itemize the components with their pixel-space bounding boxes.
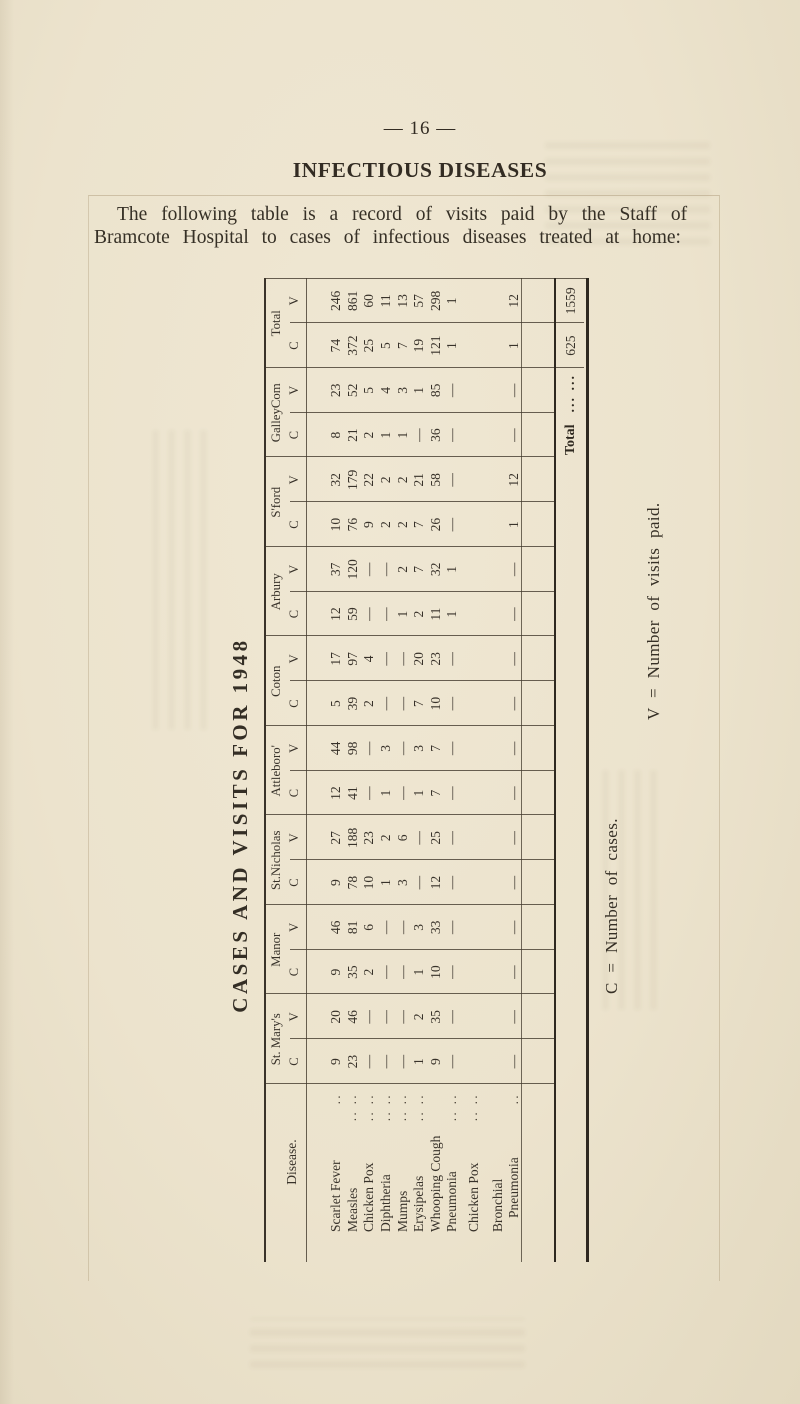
station-subheaders: CV	[287, 279, 302, 369]
table-row: Pneumonia.. ..——————————11————11	[444, 279, 461, 1263]
station-header: Attleboro'CV	[269, 726, 305, 816]
value-cell: —	[378, 592, 394, 637]
disease-name: Chicken Pox	[361, 1163, 377, 1232]
station-header: St. Mary'sCV	[269, 995, 305, 1085]
value-cell: 8	[328, 413, 344, 458]
subheader-v: V	[287, 905, 302, 950]
value-cell: 3	[411, 905, 427, 950]
value-cell: 46	[345, 995, 361, 1040]
value-cell: 2	[395, 502, 411, 547]
report-page: — 16 — INFECTIOUS DISEASES The following…	[0, 0, 800, 1404]
value-cell: —	[378, 950, 394, 995]
value-cell: —	[444, 816, 460, 861]
value-cell: 46	[328, 905, 344, 950]
subheader-v: V	[287, 995, 302, 1040]
station-header: St.NicholasCV	[269, 816, 305, 906]
value-cell: 9	[328, 860, 344, 905]
disease-column-header: Disease.	[284, 1084, 300, 1262]
value-cell: 4	[378, 368, 394, 413]
value-cell: 12	[428, 860, 444, 905]
value-cell: 1	[411, 368, 427, 413]
value-cell: 76	[345, 502, 361, 547]
value-cell: —	[378, 905, 394, 950]
value-cell: 23	[361, 816, 377, 861]
value-cell: —	[444, 413, 460, 458]
value-cell: 120	[345, 547, 361, 592]
value-cell: —	[361, 547, 377, 592]
value-cell: 39	[345, 681, 361, 726]
disease-name: Erysipelas	[411, 1176, 427, 1232]
value-cell: 41	[345, 771, 361, 816]
disease-name: Whooping Cough	[428, 1136, 444, 1232]
value-cell: —	[444, 458, 460, 503]
station-subheaders: CV	[287, 458, 302, 548]
value-cell: 11	[378, 279, 394, 324]
total-leader-dots: ... ...	[563, 374, 578, 413]
key-visits: V = Number of visits paid.	[644, 503, 664, 721]
value-cell: 35	[345, 950, 361, 995]
page-number: — 16 —	[0, 118, 800, 140]
value-cell: 7	[428, 771, 444, 816]
leader-dots: .. ..	[395, 1093, 410, 1121]
value-cell: 2	[411, 592, 427, 637]
value-cell: 20	[328, 995, 344, 1040]
value-cell: 22	[361, 458, 377, 503]
subheader-c: C	[287, 681, 302, 726]
disease-name: Scarlet Fever	[328, 1160, 344, 1232]
total-word: Total	[563, 425, 578, 456]
table-row: BronchialPneumonia..————————————112——112	[487, 279, 523, 1263]
value-cell: 246	[328, 279, 344, 324]
station-subheaders: CV	[287, 637, 302, 727]
value-cell: 13	[395, 279, 411, 324]
table-row: Measles.. ..2346358178188419839975912076…	[345, 279, 362, 1263]
value-cell: 44	[328, 726, 344, 771]
page-title: INFECTIOUS DISEASES	[0, 158, 800, 183]
disease-label: Chicken Pox.. ..	[361, 1084, 377, 1262]
value-cell: —	[444, 726, 460, 771]
station-name: Total	[269, 279, 284, 369]
value-cell: 10	[428, 681, 444, 726]
value-cell: 11	[428, 592, 444, 637]
value-cell: 33	[428, 905, 444, 950]
value-cell: 58	[428, 458, 444, 503]
value-cell: 1	[378, 860, 394, 905]
rotated-table-block: CASES AND VISITS FOR 1948 Disease. St. M…	[228, 278, 688, 1262]
value-cell: 20	[411, 637, 427, 682]
value-cell: 2	[361, 413, 377, 458]
leader-dots: .. ..	[362, 1093, 377, 1121]
station-name: Coton	[269, 637, 284, 727]
grand-total-visits: 1559	[556, 279, 586, 324]
table-row: Chicken Pox.. ..——261023——24——922252560	[361, 279, 378, 1263]
leader-dots: .. ..	[445, 1093, 460, 1121]
intro-paragraph-line2: Bramcote Hospital to cases of infectious…	[94, 227, 681, 249]
value-cell: 21	[411, 458, 427, 503]
value-cell: 10	[428, 950, 444, 995]
value-cell: 188	[345, 816, 361, 861]
value-cell: —	[444, 1039, 460, 1084]
subheader-c: C	[287, 860, 302, 905]
value-cell: —	[378, 681, 394, 726]
intro-paragraph-line1: The following table is a record of visit…	[117, 204, 687, 226]
value-cell: —	[444, 860, 460, 905]
subheader-c: C	[287, 592, 302, 637]
subheader-c: C	[287, 771, 302, 816]
value-cell: 6	[361, 905, 377, 950]
value-cell: 3	[378, 726, 394, 771]
disease-name: Mumps	[395, 1191, 411, 1232]
station-name: Arbury	[269, 547, 284, 637]
value-cell: 5	[328, 681, 344, 726]
value-cell: —	[444, 637, 460, 682]
table-key: C = Number of cases. V = Number of visit…	[602, 278, 682, 1262]
value-cell: 6	[395, 816, 411, 861]
leader-dots: .. ..	[412, 1093, 427, 1121]
station-subheaders: CV	[287, 816, 302, 906]
value-cell: —	[411, 816, 427, 861]
station-name: Manor	[269, 905, 284, 995]
value-cell: 23	[328, 368, 344, 413]
value-cell: 7	[411, 547, 427, 592]
value-cell: 1	[395, 592, 411, 637]
disease-label: Pneumonia.. ..	[444, 1084, 460, 1262]
leader-dots: .. ..	[345, 1093, 360, 1121]
value-cell: 32	[428, 547, 444, 592]
disease-label: Erysipelas.. ..	[411, 1084, 427, 1262]
value-cell: 7	[411, 681, 427, 726]
leader-dots: .. ..	[466, 1093, 481, 1121]
showthrough-smudge	[152, 430, 207, 730]
value-cell: 19	[411, 323, 427, 368]
subheader-v: V	[287, 458, 302, 503]
station-name: GalleyCom	[269, 368, 284, 458]
value-cell: 97	[345, 637, 361, 682]
station-subheaders: CV	[287, 547, 302, 637]
disease-label-line1: Bronchial	[490, 1093, 507, 1232]
value-cell: 2	[378, 816, 394, 861]
subheader-v: V	[287, 547, 302, 592]
value-cell: 60	[361, 279, 377, 324]
subheader-c: C	[287, 413, 302, 458]
value-cell: 5	[378, 323, 394, 368]
value-cell: 3	[395, 368, 411, 413]
value-cell: —	[395, 726, 411, 771]
value-cell: 35	[428, 995, 444, 1040]
value-cell: —	[378, 1039, 394, 1084]
value-cell: 74	[328, 323, 344, 368]
subheader-c: C	[287, 502, 302, 547]
infectious-diseases-table: Disease. St. Mary'sCVManorCVSt.NicholasC…	[264, 279, 590, 1263]
value-cell: 32	[328, 458, 344, 503]
station-subheaders: CV	[287, 905, 302, 995]
value-cell: 21	[345, 413, 361, 458]
value-cell: 59	[345, 592, 361, 637]
value-cell: 85	[428, 368, 444, 413]
value-cell: —	[361, 726, 377, 771]
value-cell: —	[444, 771, 460, 816]
disease-name: Diphtheria	[378, 1174, 394, 1232]
station-name: St. Mary's	[269, 995, 284, 1085]
value-cell: 25	[361, 323, 377, 368]
value-cell: 23	[428, 637, 444, 682]
grand-total-cases: 625	[556, 323, 586, 368]
disease-name: Pneumonia	[444, 1171, 460, 1232]
disease-label: BronchialPneumonia..	[490, 1084, 523, 1262]
value-cell: —	[395, 995, 411, 1040]
value-cell: —	[444, 995, 460, 1040]
value-cell: 26	[428, 502, 444, 547]
value-cell: 9	[328, 1039, 344, 1084]
value-cell: 4	[361, 637, 377, 682]
value-cell: 372	[345, 323, 361, 368]
disease-label: Mumps.. ..	[395, 1084, 411, 1262]
value-cell: 9	[361, 502, 377, 547]
total-label: Total... ...	[556, 374, 586, 1262]
value-cell: —	[361, 592, 377, 637]
disease-name: Chicken Pox	[466, 1163, 482, 1232]
value-cell: —	[395, 771, 411, 816]
table-title: CASES AND VISITS FOR 1948	[228, 388, 253, 1262]
value-cell: 1	[444, 323, 460, 368]
value-cell: —	[395, 905, 411, 950]
subheader-v: V	[287, 368, 302, 413]
value-cell: 1	[395, 413, 411, 458]
table-top-rule	[264, 279, 266, 1263]
value-cell: 179	[345, 458, 361, 503]
value-cell: 9	[328, 950, 344, 995]
subheader-v: V	[287, 726, 302, 771]
station-name: St.Nicholas	[269, 816, 284, 906]
value-cell: —	[378, 637, 394, 682]
value-cell: 1	[444, 279, 460, 324]
value-cell: 2	[378, 502, 394, 547]
subheader-c: C	[287, 1039, 302, 1084]
value-cell: 1	[411, 950, 427, 995]
subheader-c: C	[287, 950, 302, 995]
body-bottom-rule	[521, 279, 522, 1263]
value-cell: —	[444, 368, 460, 413]
disease-label: Scarlet Fever..	[328, 1084, 344, 1262]
value-cell: —	[361, 1039, 377, 1084]
value-cell: 17	[328, 637, 344, 682]
value-cell: 10	[328, 502, 344, 547]
station-subheaders: CV	[287, 726, 302, 816]
table-bottom-rule	[586, 279, 589, 1263]
value-cell: —	[444, 950, 460, 995]
value-cell: 3	[411, 726, 427, 771]
total-row: Total... ... 625 1559	[556, 279, 586, 1263]
value-cell: 9	[428, 1039, 444, 1084]
value-cell: —	[395, 637, 411, 682]
station-header: ManorCV	[269, 905, 305, 995]
value-cell: 1	[378, 413, 394, 458]
value-cell: 2	[361, 681, 377, 726]
station-header: S'fordCV	[269, 458, 305, 548]
value-cell: 861	[345, 279, 361, 324]
station-header: ArburyCV	[269, 547, 305, 637]
value-cell: —	[378, 547, 394, 592]
value-cell: 2	[361, 950, 377, 995]
value-cell: —	[361, 771, 377, 816]
station-header: GalleyComCV	[269, 368, 305, 458]
table-row: Whooping Cough93510331225771023113226583…	[428, 279, 445, 1263]
value-cell: 1	[444, 547, 460, 592]
value-cell: 1	[378, 771, 394, 816]
value-cell: 57	[411, 279, 427, 324]
value-cell: 5	[361, 368, 377, 413]
value-cell: 12	[328, 592, 344, 637]
table-row: Chicken Pox.. ..	[461, 279, 487, 1263]
value-cell: 1	[411, 1039, 427, 1084]
value-cell: 2	[395, 458, 411, 503]
value-cell: —	[361, 995, 377, 1040]
station-header: CotonCV	[269, 637, 305, 727]
value-cell: 10	[361, 860, 377, 905]
station-name: S'ford	[269, 458, 284, 548]
showthrough-smudge	[250, 1318, 525, 1368]
table-row: Erysipelas.. ..1213——1372027721—11957	[411, 279, 428, 1263]
station-subheaders: CV	[287, 368, 302, 458]
value-cell: 2	[395, 547, 411, 592]
value-cell: —	[395, 950, 411, 995]
disease-label: Whooping Cough	[428, 1084, 444, 1262]
value-cell: 27	[328, 816, 344, 861]
disease-label: Measles.. ..	[345, 1084, 361, 1262]
station-name: Attleboro'	[269, 726, 284, 816]
value-cell: 12	[328, 771, 344, 816]
value-cell: —	[444, 905, 460, 950]
table-row: Scarlet Fever..9209469271244517123710328…	[328, 279, 345, 1263]
value-cell: —	[444, 681, 460, 726]
value-cell: —	[411, 413, 427, 458]
subheader-v: V	[287, 637, 302, 682]
value-cell: 52	[345, 368, 361, 413]
value-cell: 78	[345, 860, 361, 905]
subheader-c: C	[287, 323, 302, 368]
value-cell: 7	[428, 726, 444, 771]
leader-dots: ..	[329, 1093, 344, 1104]
subheader-v: V	[287, 816, 302, 861]
value-cell: 121	[428, 323, 444, 368]
value-cell: 7	[395, 323, 411, 368]
table-row: Diphtheria.. ..————1213————2214511	[378, 279, 395, 1263]
disease-label: Diphtheria.. ..	[378, 1084, 394, 1262]
disease-name: Measles	[345, 1188, 361, 1232]
station-subheaders: CV	[287, 995, 302, 1085]
value-cell: —	[444, 502, 460, 547]
value-cell: 81	[345, 905, 361, 950]
value-cell: 23	[345, 1039, 361, 1084]
value-cell: 25	[428, 816, 444, 861]
value-cell: 2	[378, 458, 394, 503]
value-cell: 1	[444, 592, 460, 637]
value-cell: 7	[411, 502, 427, 547]
value-cell: 37	[328, 547, 344, 592]
value-cell: —	[411, 860, 427, 905]
value-cell: 298	[428, 279, 444, 324]
value-cell: —	[395, 1039, 411, 1084]
key-cases: C = Number of cases.	[602, 818, 622, 994]
value-cell: 36	[428, 413, 444, 458]
station-header: TotalCV	[269, 279, 305, 369]
table-row: Mumps.. ..————36————122213713	[394, 279, 411, 1263]
subheader-v: V	[287, 279, 302, 324]
value-cell: —	[378, 995, 394, 1040]
leader-dots: .. ..	[379, 1093, 394, 1121]
value-cell: 98	[345, 726, 361, 771]
value-cell: 1	[411, 771, 427, 816]
value-cell: —	[395, 681, 411, 726]
value-cell: 2	[411, 995, 427, 1040]
disease-label: Chicken Pox.. ..	[466, 1084, 482, 1262]
value-cell: 3	[395, 860, 411, 905]
